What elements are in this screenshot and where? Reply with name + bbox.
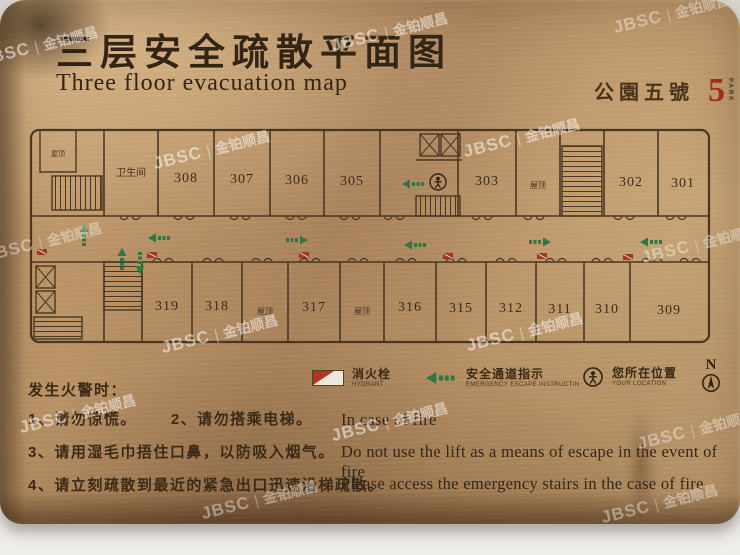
room-label-315: 315 <box>449 301 473 316</box>
room-label-roof-top: 屋顶 <box>530 181 546 190</box>
room-label-bathroom: 卫生间 <box>116 166 146 179</box>
legend-escape-label-en: EMERGENCY ESCAPE INSTRUCTIN <box>466 382 579 388</box>
room-label-310: 310 <box>595 302 619 317</box>
room-label-309: 309 <box>657 303 681 318</box>
escape-arrow-left-icon <box>404 241 426 250</box>
room-label-319: 319 <box>155 299 179 314</box>
brand-name: 公園五號 <box>594 76 694 105</box>
room-label-306: 306 <box>285 173 309 188</box>
room-label-303: 303 <box>475 174 499 189</box>
photo-streak <box>0 0 26 524</box>
fire-hydrant-legend-icon <box>312 370 344 386</box>
room-label-roof-left: 屋顶 <box>51 150 65 158</box>
legend-escape-label: 安全通道指示 <box>466 368 579 380</box>
room-label-roof-bottom-1: 屋顶 <box>257 307 273 316</box>
compass-north-label: N <box>700 358 722 372</box>
room-label-317: 317 <box>302 300 326 315</box>
elevator-icon <box>441 134 460 156</box>
escape-arrow-up-icon <box>80 224 89 246</box>
fire-hydrant-icon <box>538 254 547 259</box>
legend-hydrant-label-en: HYDRANT <box>352 382 391 388</box>
elevator-icon <box>420 134 439 156</box>
escape-arrow-left-icon <box>402 180 424 189</box>
room-label-311: 311 <box>548 302 571 317</box>
fire-hydrant-icon <box>624 255 633 260</box>
stairs-top-left <box>52 176 102 210</box>
legend-location-label-en: YOUR LOCATION <box>612 381 677 387</box>
instruction-line-1: 1、请勿惊慌。2、请勿搭乘电梯。 <box>28 408 313 429</box>
room-label-307: 307 <box>230 172 254 187</box>
instruction-line-2: 3、请用湿毛巾捂住口鼻，以防吸入烟气。 <box>28 441 335 462</box>
room-label-301: 301 <box>671 176 695 191</box>
room-label-318: 318 <box>205 299 229 314</box>
fire-hydrant-icon <box>38 250 47 255</box>
compass: N <box>700 358 722 399</box>
instruction-en-1: In case of fire <box>341 410 437 430</box>
legend-location-label: 您所在位置 <box>612 367 677 379</box>
fire-hydrant-icon <box>148 253 157 258</box>
legend-hydrant: 消火栓 HYDRANT <box>312 368 391 388</box>
floor-plan-svg: 屋顶 卫生间 308 307 306 305 303 屋顶 302 301 31… <box>28 114 712 360</box>
room-label-316: 316 <box>398 300 422 315</box>
brand-logo: 公園五號 5 PARK <box>594 76 733 106</box>
brand-number: 5 <box>708 76 725 106</box>
escape-arrow-right-icon <box>286 236 308 245</box>
fire-hydrant-icon <box>300 253 309 258</box>
evacuation-map-plaque: 三层安全疏散平面图 Three floor evacuation map 公園五… <box>0 0 740 524</box>
room-label-305: 305 <box>340 174 364 189</box>
floor-plan: 屋顶 卫生间 308 307 306 305 303 屋顶 302 301 31… <box>28 114 712 360</box>
stairs-bottom-left <box>34 317 82 339</box>
instruction-item-1: 1、请勿惊慌。 <box>28 411 137 428</box>
escape-arrow-left-icon <box>148 234 170 243</box>
your-location-legend-icon <box>582 366 604 388</box>
compass-icon <box>700 372 722 394</box>
photo-smudge <box>626 410 656 524</box>
escape-arrow-right-icon <box>529 238 551 247</box>
legend-your-location: 您所在位置 YOUR LOCATION <box>582 366 677 388</box>
fire-hydrant-icon <box>444 254 453 259</box>
room-label-308: 308 <box>174 171 198 186</box>
room-label-312: 312 <box>499 301 523 316</box>
stairs-right <box>562 146 602 216</box>
legend-hydrant-label: 消火栓 <box>352 368 391 380</box>
stairs-center <box>416 196 460 216</box>
escape-arrow-left-icon <box>640 238 662 247</box>
elevator-icon <box>36 266 55 288</box>
room-label-roof-bottom-2: 屋顶 <box>354 307 370 316</box>
instruction-item-2: 2、请勿搭乘电梯。 <box>171 411 313 428</box>
page-title: 三层安全疏散平面图 <box>56 22 452 76</box>
elevator-icon <box>36 291 55 313</box>
watermark: JBSC|金铂顺昌 <box>611 0 732 38</box>
instructions-heading: 发生火警时： <box>28 379 127 400</box>
room-label-302: 302 <box>619 175 643 190</box>
brand-vertical-text: PARK <box>727 78 733 103</box>
legend-escape-route: 安全通道指示 EMERGENCY ESCAPE INSTRUCTIN <box>424 368 579 388</box>
your-location-icon <box>430 174 446 190</box>
escape-route-legend-icon <box>424 371 458 385</box>
